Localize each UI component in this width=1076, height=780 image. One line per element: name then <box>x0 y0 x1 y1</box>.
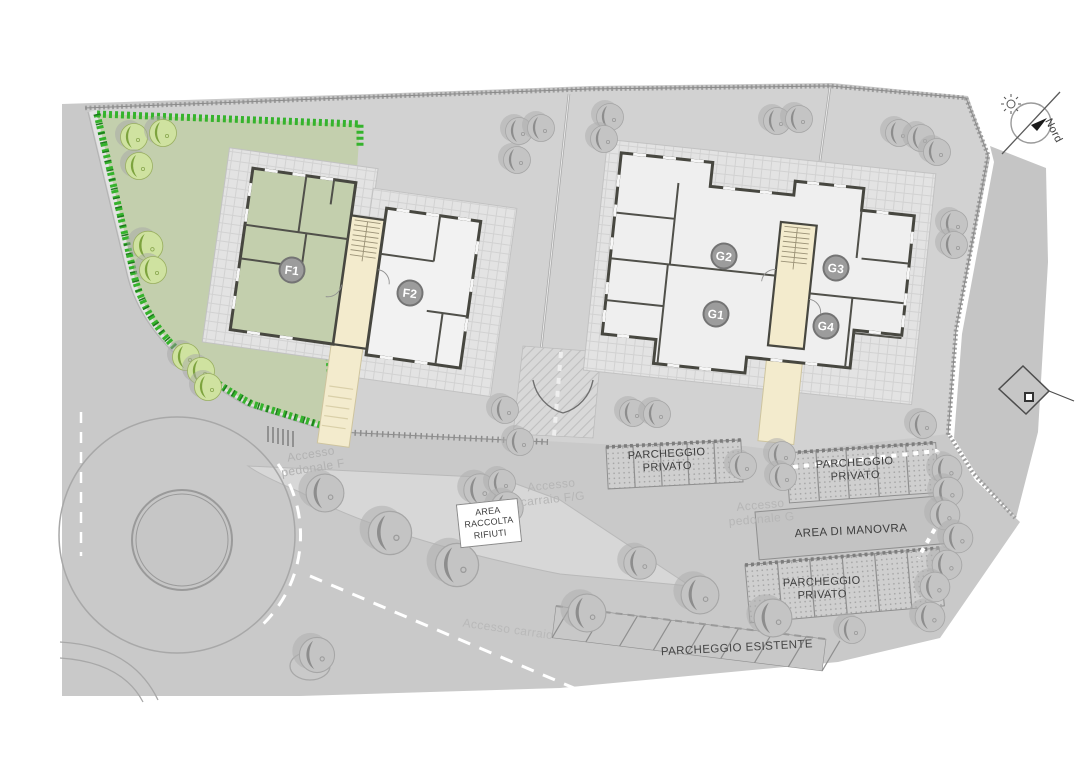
sun-icon <box>1001 94 1021 114</box>
north-arrow-icon <box>1001 92 1060 154</box>
site-plan-page: Nord PARCHEGGIO PRIVATOPARCHEGGIO PRIVAT… <box>0 0 1076 780</box>
site-plan-drawing <box>0 0 1076 780</box>
unit-f2-outline <box>366 208 481 368</box>
parking-lot-privato-fg <box>606 440 743 489</box>
